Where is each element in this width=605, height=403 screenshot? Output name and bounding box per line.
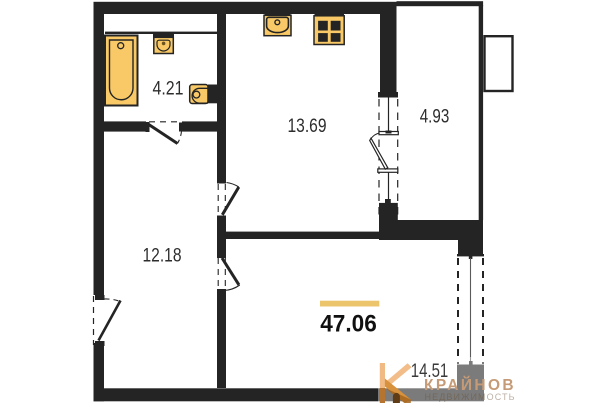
svg-text:12.18: 12.18 [143,245,182,267]
svg-text:НЕДВИЖИМОСТЬ: НЕДВИЖИМОСТЬ [425,392,516,402]
svg-text:47.06: 47.06 [320,310,377,337]
svg-text:4.21: 4.21 [153,78,184,100]
svg-text:4.93: 4.93 [420,106,450,128]
svg-text:13.69: 13.69 [288,115,327,137]
